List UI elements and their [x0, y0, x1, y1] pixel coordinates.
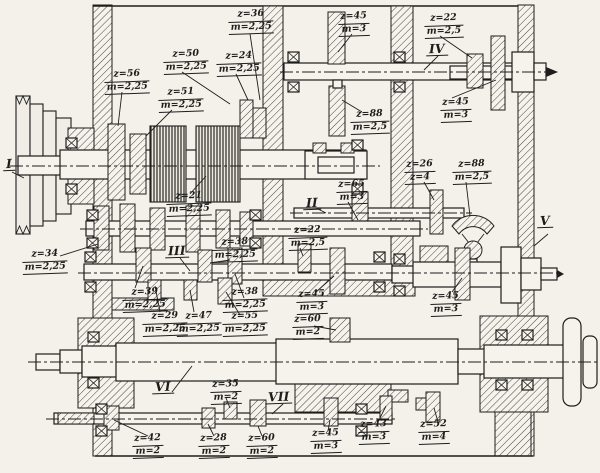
module-value: m=2,25 [158, 99, 204, 113]
module-value: m=2,5 [424, 25, 463, 39]
shaft-label-V: V [537, 214, 553, 229]
module-value: m=2 [246, 445, 277, 459]
gear-label-z26-z4: z=26z=4 [404, 159, 435, 185]
gear-label-z39: z=39m=2,25 [122, 286, 168, 313]
module-value: m=4 [418, 431, 449, 445]
module-value: m=2 [198, 445, 229, 459]
module-value: m=2,25 [228, 21, 274, 35]
gear-label-z45-right: z=45m=3 [430, 291, 461, 317]
gear-label-z34: z=34m=2,25 [22, 248, 68, 275]
gear-label-z38-a: z=38m=2,25 [212, 236, 258, 263]
gear-label-z45-topright: z=45m=3 [440, 97, 471, 123]
shaft-label-VII: VII [265, 390, 293, 405]
module-value: m=3 [358, 431, 389, 445]
gear-label-z36: z=36m=2,25 [228, 8, 274, 35]
gear-label-z45-mid: z=45m=3 [296, 289, 327, 315]
gear-label-z51: z=51m=2,25 [158, 86, 204, 113]
gear-label-z22-topright: z=22m=2,5 [424, 13, 463, 39]
gear-label-z24: z=24m=2,25 [216, 50, 262, 77]
gear-label-z50: z=50m=2,25 [163, 48, 209, 75]
gear-label-z65: z=65m=3 [336, 179, 367, 205]
module-value: m=2,25 [216, 63, 262, 77]
gear-label-z52: z=52m=4 [418, 419, 449, 445]
gear-label-z35: z=35m=2 [210, 379, 241, 405]
module-value: m=2 [132, 445, 163, 459]
gear-label-z88-top: z=88m=2,5 [350, 109, 389, 135]
gear-label-z88-mid: z=88m=2,5 [452, 159, 491, 185]
module-value: m=2,25 [212, 249, 258, 263]
module-value: m=2,25 [22, 261, 68, 275]
module-value: m=3 [338, 23, 369, 37]
module-value: m=2,25 [176, 323, 222, 337]
gear-label-z42: z=42m=2 [132, 433, 163, 459]
gear-label-z45-top: z=45m=3 [338, 11, 369, 37]
gear-label-z21: z=21m=2,25 [166, 190, 212, 217]
gear-label-z60-bottom: z=60m=2 [246, 433, 277, 459]
gear-label-z28: z=28m=2 [198, 433, 229, 459]
gear-label-z56: z=56m=2,25 [104, 68, 150, 95]
module-value: m=3 [336, 191, 367, 205]
module-value: m=2,25 [222, 323, 268, 337]
module-value: m=3 [440, 109, 471, 123]
gear-label-z55: z=55m=2,25 [222, 310, 268, 337]
gear-label-z38-b: z=38m=2,25 [222, 286, 268, 313]
shaft-label-II: II [303, 196, 321, 211]
shaft-label-VI: VI [152, 380, 174, 395]
module-value: m=2 [210, 391, 241, 405]
module-value: m=2,5 [288, 237, 327, 251]
shaft-label-III: III [165, 244, 189, 259]
gear-label-z45-bottom: z=45m=3 [310, 428, 341, 454]
module-value: m=2 [292, 326, 323, 340]
annotation-layer: z=56m=2,25 z=51m=2,25 z=50m=2,25 z=24m=2… [0, 0, 600, 473]
gear-label-z22-mid: z=22m=2,5 [288, 225, 327, 251]
module-value: m=2,5 [350, 121, 389, 135]
module-value: m=3 [310, 440, 341, 454]
module-value: z=4 [404, 171, 435, 185]
module-value: m=2,5 [452, 171, 491, 185]
gearbox-sectional-drawing: z=56m=2,25 z=51m=2,25 z=50m=2,25 z=24m=2… [0, 0, 600, 473]
gear-label-z60-mid: z=60m=2 [292, 314, 323, 340]
gear-label-z43: z=43m=3 [358, 419, 389, 445]
module-value: m=2,25 [104, 81, 150, 95]
module-value: m=3 [430, 303, 461, 317]
shaft-label-I: I [3, 157, 15, 171]
module-value: m=2,25 [166, 203, 212, 217]
gear-label-z47: z=47m=2,25 [176, 310, 222, 337]
module-value: m=2,25 [163, 61, 209, 75]
shaft-label-IV: IV [426, 42, 448, 57]
